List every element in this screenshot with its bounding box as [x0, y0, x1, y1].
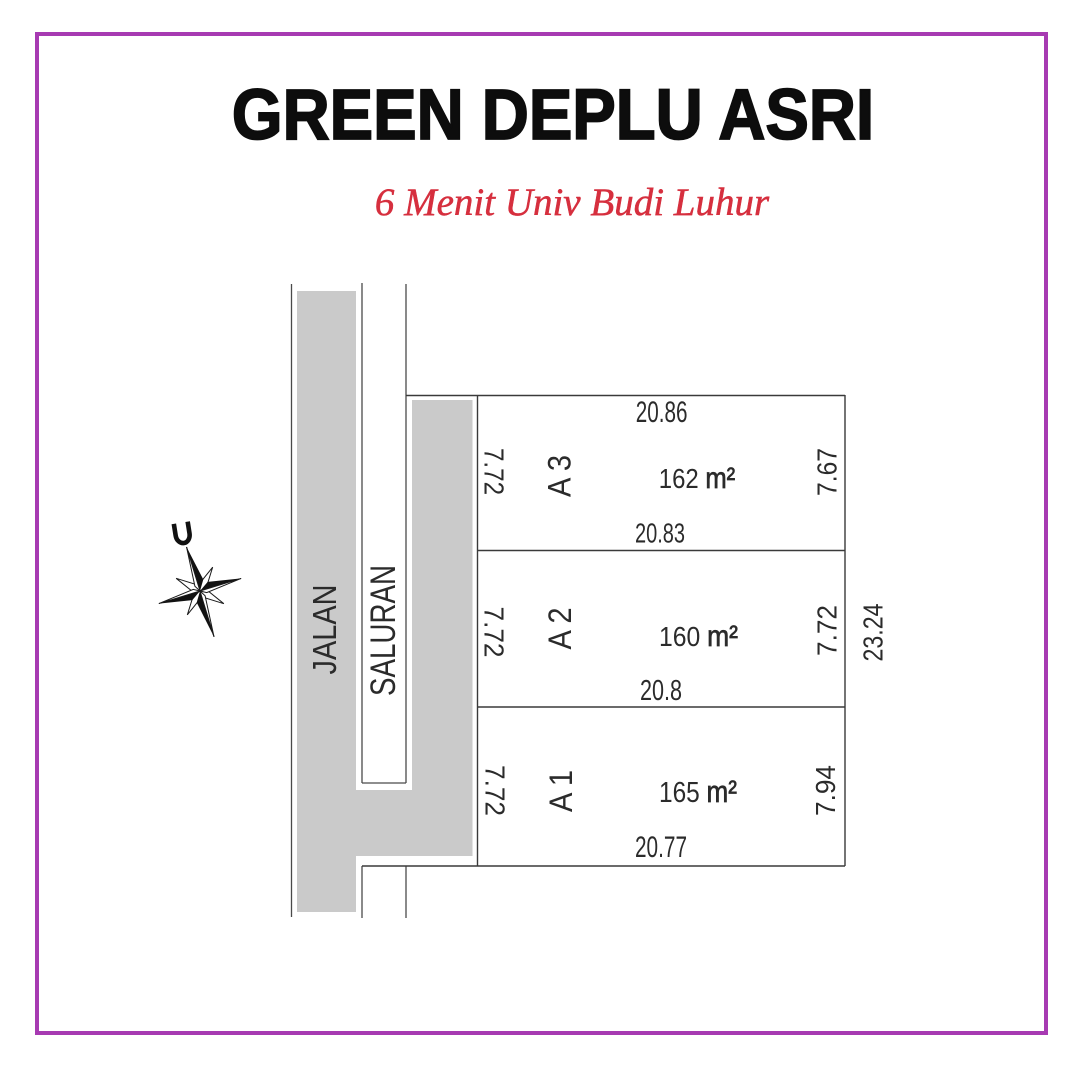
- svg-text:A 1: A 1: [543, 770, 579, 812]
- svg-text:23.24: 23.24: [858, 604, 889, 662]
- svg-text:7.72: 7.72: [479, 448, 510, 495]
- svg-text:7.72: 7.72: [812, 605, 843, 656]
- svg-text:20.86: 20.86: [636, 396, 688, 429]
- svg-text:JALAN: JALAN: [306, 585, 343, 675]
- svg-text:SALURAN: SALURAN: [363, 565, 403, 696]
- svg-text:A 2: A 2: [542, 608, 578, 650]
- svg-text:7.67: 7.67: [812, 448, 843, 496]
- svg-text:162 m²: 162 m²: [659, 462, 735, 495]
- svg-text:A 3: A 3: [542, 455, 578, 497]
- svg-text:20.8: 20.8: [640, 675, 682, 707]
- svg-text:7.72: 7.72: [479, 607, 510, 658]
- svg-text:165 m²: 165 m²: [659, 774, 737, 809]
- svg-text:7.72: 7.72: [480, 765, 511, 816]
- svg-text:160 m²: 160 m²: [659, 620, 738, 653]
- svg-text:7.94: 7.94: [810, 765, 841, 816]
- svg-text:20.83: 20.83: [635, 518, 685, 549]
- svg-text:20.77: 20.77: [635, 831, 687, 864]
